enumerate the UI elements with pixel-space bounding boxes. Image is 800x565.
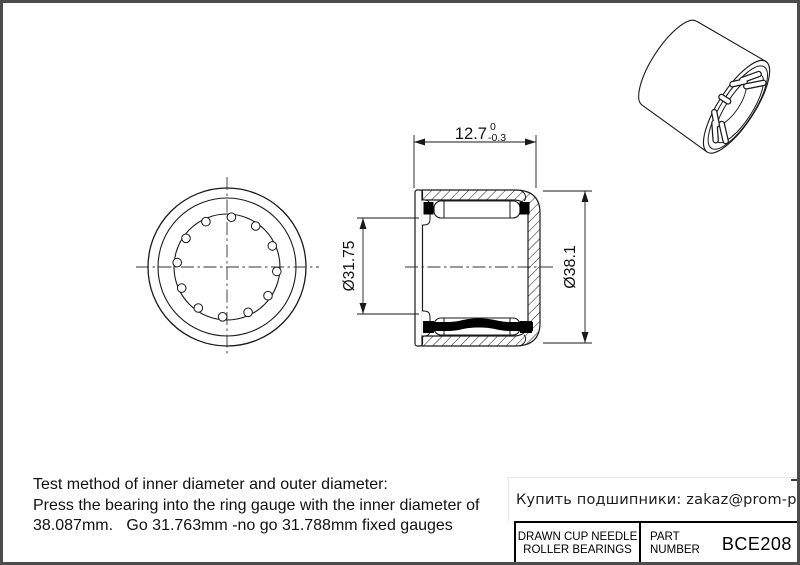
width-dimension: 12.7 0 -0.3 bbox=[414, 121, 536, 188]
cage-block-top-right bbox=[520, 202, 530, 215]
frame-remnant-line bbox=[791, 479, 800, 481]
width-dim-label: 12.7 bbox=[455, 125, 487, 143]
section-view bbox=[405, 190, 555, 346]
front-view-centerlines bbox=[136, 177, 319, 357]
note-line-2: Press the bearing into the ring gauge wi… bbox=[33, 496, 480, 517]
roller-top bbox=[424, 201, 530, 218]
drawing-sheet: 12.7 0 -0.3 Ø31.75 Ø38.1 bbox=[0, 0, 800, 565]
product-type-line-2: ROLLER BEARINGS bbox=[523, 544, 632, 557]
isometric-view bbox=[626, 9, 781, 162]
note-line-3: 38.087mm. Go 31.763mm -no go 31.788mm fi… bbox=[33, 516, 480, 537]
part-number-value: BCE208 bbox=[722, 534, 792, 555]
product-type-line-1: DRAWN CUP NEEDLE bbox=[518, 531, 638, 544]
width-tol-lower: -0.3 bbox=[488, 132, 506, 144]
title-block-part-cell: PART NUMBER BCE208 bbox=[641, 523, 797, 565]
od-dim-label: Ø38.1 bbox=[562, 245, 579, 289]
cage-block-top-left bbox=[424, 202, 434, 215]
title-block: DRAWN CUP NEEDLE ROLLER BEARINGS PART NU… bbox=[514, 521, 797, 565]
contact-overlay: Купить подшипники: zakaz@prom-pod.ru bbox=[508, 477, 798, 521]
part-number-label: PART NUMBER bbox=[650, 531, 700, 557]
test-method-notes: Test method of inner diameter and outer … bbox=[33, 475, 480, 537]
front-view bbox=[136, 177, 319, 357]
section-left-face bbox=[415, 190, 423, 346]
roller-bottom bbox=[423, 318, 533, 335]
note-line-1: Test method of inner diameter and outer … bbox=[33, 475, 480, 496]
title-block-product-cell: DRAWN CUP NEEDLE ROLLER BEARINGS bbox=[516, 523, 641, 565]
bore-dim-label: Ø31.75 bbox=[341, 241, 358, 292]
bore-dimension: Ø31.75 bbox=[341, 218, 419, 314]
contact-info: Купить подшипники: zakaz@prom-pod.ru bbox=[509, 492, 800, 508]
